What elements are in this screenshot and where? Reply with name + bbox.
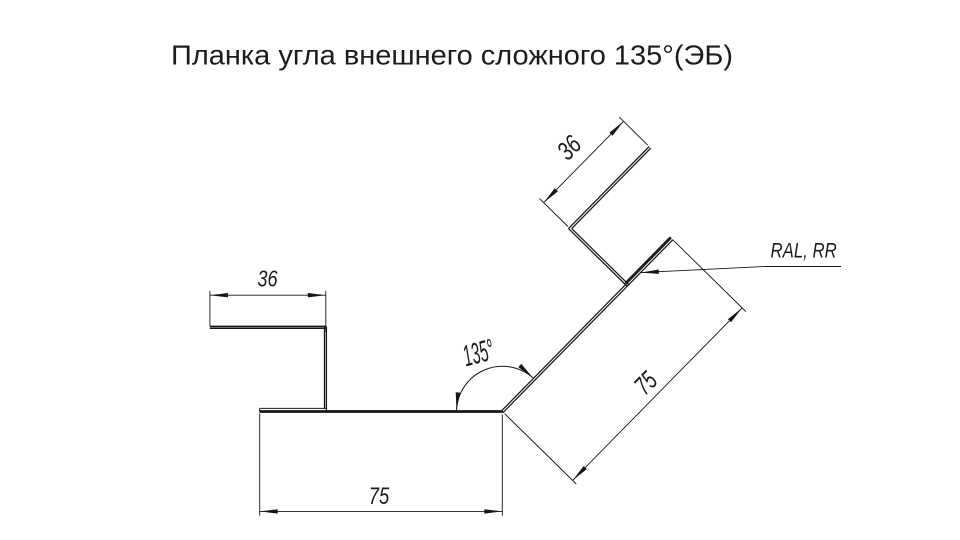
svg-text:75: 75 (628, 365, 663, 400)
svg-text:RAL, RR: RAL, RR (771, 240, 837, 263)
svg-text:36: 36 (551, 129, 587, 165)
svg-text:Планка угла внешнего сложного: Планка угла внешнего сложного 135°(ЭБ) (171, 40, 733, 71)
svg-text:75: 75 (369, 481, 390, 509)
svg-text:36: 36 (257, 266, 278, 292)
